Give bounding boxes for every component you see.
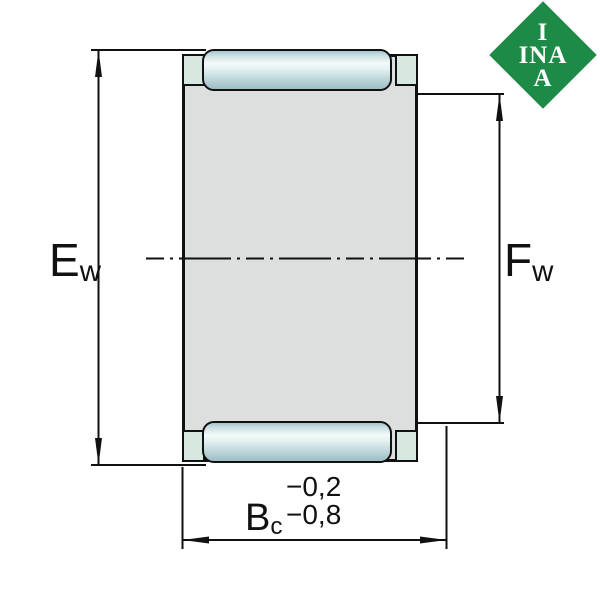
arrow-left-icon bbox=[183, 537, 210, 544]
ew-label: Ew bbox=[49, 238, 101, 289]
arrow-down-icon bbox=[95, 438, 102, 465]
arrow-down-icon bbox=[496, 396, 503, 423]
arrow-right-icon bbox=[420, 537, 447, 544]
ina-logo-line2: INA bbox=[519, 44, 568, 67]
bc-tolerance-upper: −0,2 bbox=[286, 473, 341, 501]
needle-roller-bottom bbox=[202, 421, 392, 463]
fw-symbol: F bbox=[504, 234, 532, 286]
fw-subscript: w bbox=[532, 255, 553, 288]
ina-logo-line3: A bbox=[533, 67, 552, 90]
ew-subscript: w bbox=[80, 255, 101, 288]
ew-symbol: E bbox=[49, 234, 80, 286]
cage-lip-top-right bbox=[395, 54, 418, 86]
bc-subscript: c bbox=[270, 513, 282, 540]
arrow-up-icon bbox=[95, 50, 102, 77]
bc-label: Bc bbox=[245, 498, 283, 543]
cage-lip-bottom-right bbox=[395, 430, 418, 462]
ina-logo-text: I INA A bbox=[505, 17, 581, 93]
bc-tolerance-lower: −0,8 bbox=[286, 501, 341, 529]
fw-dimension bbox=[418, 94, 504, 423]
bc-tolerance: −0,2 −0,8 bbox=[286, 473, 341, 528]
ina-logo-line1: I bbox=[538, 21, 549, 44]
bearing-drawing: Ew Fw Bc −0,2 −0,8 I INA A bbox=[0, 0, 600, 600]
fw-label: Fw bbox=[504, 238, 553, 289]
cage-body bbox=[182, 54, 418, 462]
arrow-up-icon bbox=[496, 94, 503, 121]
needle-roller-top bbox=[202, 49, 392, 91]
bc-symbol: B bbox=[245, 497, 270, 539]
ina-logo: I INA A bbox=[505, 17, 581, 93]
